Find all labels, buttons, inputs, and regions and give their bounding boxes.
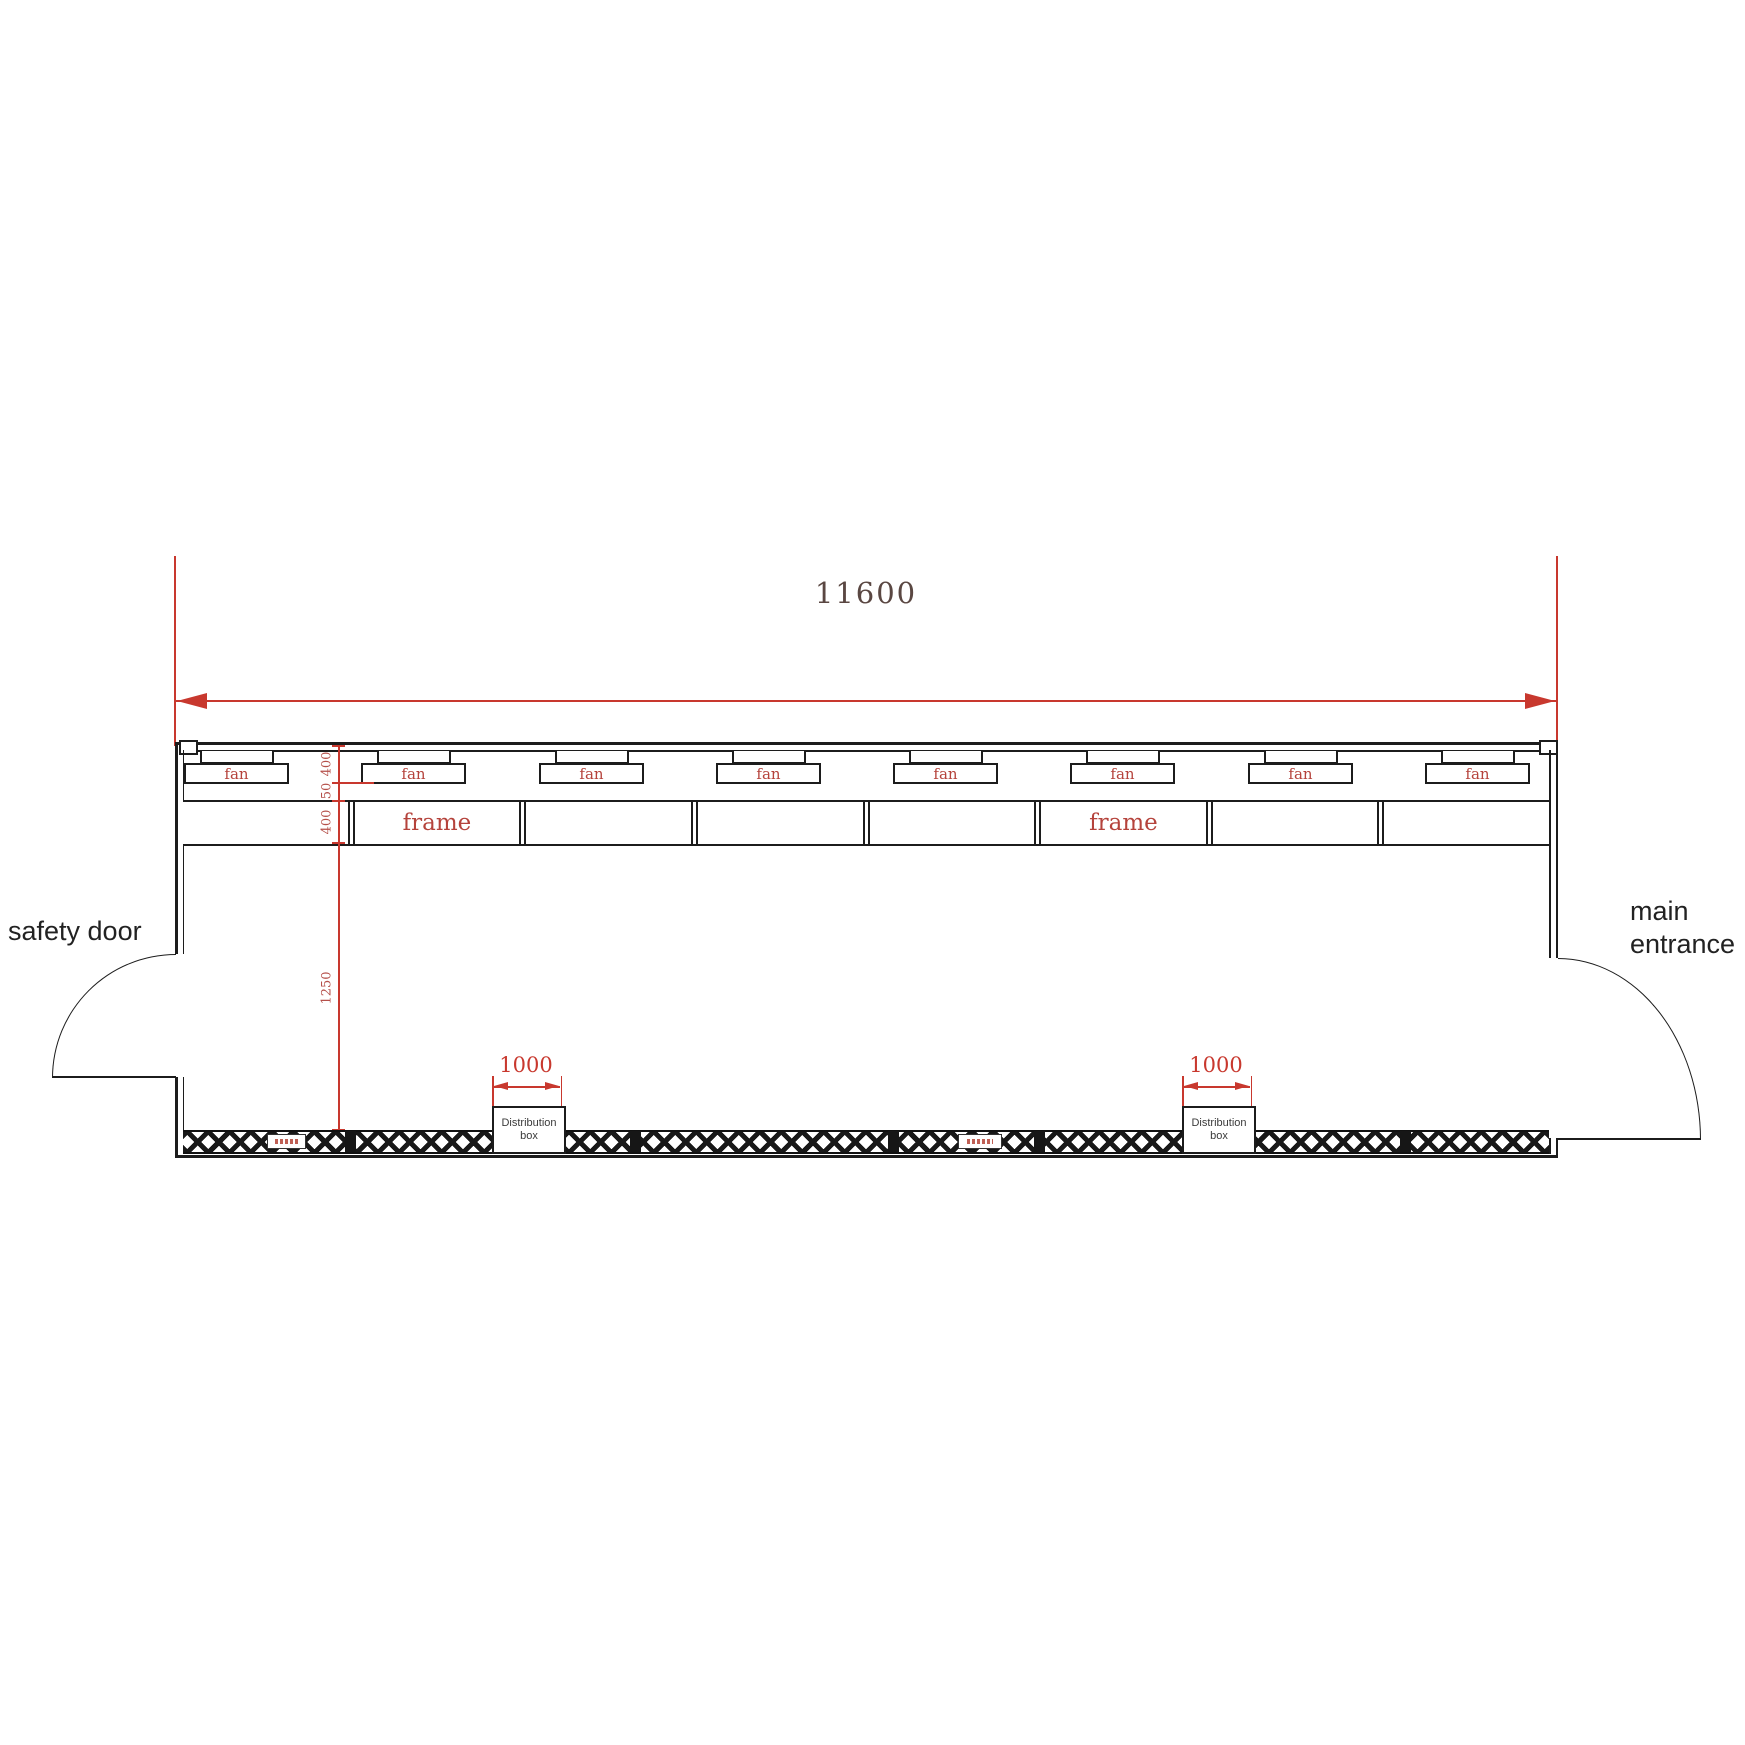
main-entrance-label-line2: entrance bbox=[1630, 928, 1735, 961]
distribution-box-width-dimension: 1000 bbox=[1161, 1053, 1271, 1077]
frame-divider bbox=[519, 802, 526, 844]
frame-divider bbox=[348, 802, 355, 844]
fan-box: fan bbox=[893, 763, 998, 784]
roof-fan-4: fan bbox=[716, 751, 822, 784]
frame-panel bbox=[698, 802, 863, 844]
fan-label: fan bbox=[579, 765, 603, 783]
safety-door-label: safety door bbox=[8, 916, 142, 947]
fan-label: fan bbox=[933, 765, 957, 783]
top-wall-outer-line bbox=[175, 742, 1558, 745]
frame-panel: frame bbox=[355, 802, 520, 844]
vertical-dimension-chain-line bbox=[338, 745, 340, 1130]
roof-fan-7: fan bbox=[1248, 751, 1354, 784]
fan-label: fan bbox=[401, 765, 425, 783]
safety-door-leaf bbox=[52, 1076, 176, 1078]
frame-panel-label: frame bbox=[1089, 810, 1158, 836]
dim-tick bbox=[332, 800, 345, 802]
fan-label: fan bbox=[224, 765, 248, 783]
distribution-box: Distribution box bbox=[492, 1106, 566, 1154]
roof-fan-1: fan bbox=[184, 751, 290, 784]
bottom-wall-outer-line bbox=[175, 1155, 1558, 1158]
wall-joint-block bbox=[1400, 1131, 1411, 1152]
dimension-arrow-right-icon bbox=[1525, 693, 1555, 709]
right-wall-upper-inner bbox=[1549, 750, 1551, 958]
fan-box: fan bbox=[1425, 763, 1530, 784]
dist-arrow-left-icon bbox=[494, 1082, 508, 1090]
fan-box: fan bbox=[1248, 763, 1353, 784]
fan-label: fan bbox=[1465, 765, 1489, 783]
wall-tag-box bbox=[267, 1134, 306, 1149]
fan-depth-dimension: 400 bbox=[320, 752, 335, 777]
dist-dim-ext-right bbox=[561, 1076, 563, 1106]
left-wall-upper bbox=[175, 742, 178, 954]
distribution-box-width-dimension: 1000 bbox=[471, 1053, 581, 1077]
overall-width-dimension: 11600 bbox=[766, 576, 966, 610]
dim-tick bbox=[332, 842, 345, 844]
bottom-wall-hatch bbox=[183, 1130, 1549, 1154]
dimension-extension-line-right bbox=[1556, 556, 1558, 746]
roof-fan-6: fan bbox=[1070, 751, 1176, 784]
distribution-box: Distribution box bbox=[1182, 1106, 1256, 1154]
main-entrance-leaf bbox=[1558, 1138, 1701, 1140]
frame-divider bbox=[1206, 802, 1213, 844]
fan-box: fan bbox=[1070, 763, 1175, 784]
wall-joint-block bbox=[630, 1131, 641, 1152]
fan-gap-dimension: 50 bbox=[320, 783, 335, 800]
wall-joint-block bbox=[345, 1131, 356, 1152]
interior-depth-dimension: 1250 bbox=[320, 971, 335, 1004]
frame-panel bbox=[1213, 802, 1378, 844]
distribution-box-label-line2: box bbox=[1210, 1130, 1228, 1143]
fan-box: fan bbox=[361, 763, 466, 784]
wall-joint-block bbox=[888, 1131, 899, 1152]
roof-fan-5: fan bbox=[893, 751, 999, 784]
right-wall-upper bbox=[1556, 742, 1559, 958]
roof-fan-3: fan bbox=[539, 751, 645, 784]
dim-tick bbox=[332, 745, 345, 747]
dist-dim-ext-left bbox=[492, 1076, 494, 1106]
frame-panel bbox=[526, 802, 691, 844]
fan-box: fan bbox=[716, 763, 821, 784]
fan-label: fan bbox=[1110, 765, 1134, 783]
frame-row: frame frame bbox=[183, 800, 1549, 846]
distribution-box-label-line1: Distribution bbox=[501, 1117, 556, 1130]
frame-panel bbox=[1384, 802, 1549, 844]
fan-label: fan bbox=[756, 765, 780, 783]
roof-fan-2: fan bbox=[361, 751, 467, 784]
dimension-arrow-left-icon bbox=[177, 693, 207, 709]
dist-dim-ext-left bbox=[1182, 1076, 1184, 1106]
main-entrance-label-line1: main bbox=[1630, 895, 1735, 928]
fan-box: fan bbox=[539, 763, 644, 784]
dimension-extension-line-left bbox=[174, 556, 176, 746]
safety-door-swing-arc bbox=[52, 954, 176, 1078]
frame-depth-dimension: 400 bbox=[320, 810, 335, 835]
frame-divider bbox=[691, 802, 698, 844]
wall-tag-box bbox=[958, 1134, 1002, 1149]
frame-divider bbox=[863, 802, 870, 844]
left-wall-lower bbox=[175, 1077, 178, 1157]
distribution-box-label-line2: box bbox=[520, 1130, 538, 1143]
dist-arrow-right-icon bbox=[545, 1082, 559, 1090]
distribution-box-label-line1: Distribution bbox=[1191, 1117, 1246, 1130]
frame-divider bbox=[1377, 802, 1384, 844]
fan-label: fan bbox=[1288, 765, 1312, 783]
dimension-line-overall bbox=[176, 700, 1556, 702]
dist-arrow-right-icon bbox=[1235, 1082, 1249, 1090]
right-wall-lower-inner bbox=[1549, 1138, 1551, 1154]
dist-dim-ext-right bbox=[1251, 1076, 1253, 1106]
floor-plan-canvas: 11600 fan fan fan fan fan fan fan fa bbox=[0, 0, 1745, 1745]
frame-panel: frame bbox=[1041, 802, 1206, 844]
roof-fan-8: fan bbox=[1425, 751, 1531, 784]
frame-panel-label: frame bbox=[403, 810, 472, 836]
main-entrance-label: main entrance bbox=[1630, 895, 1735, 961]
wall-joint-block bbox=[1034, 1131, 1045, 1152]
main-entrance-swing-arc bbox=[1558, 958, 1701, 1140]
fan-box: fan bbox=[184, 763, 289, 784]
frame-divider bbox=[1034, 802, 1041, 844]
frame-panel bbox=[870, 802, 1035, 844]
dist-arrow-left-icon bbox=[1184, 1082, 1198, 1090]
